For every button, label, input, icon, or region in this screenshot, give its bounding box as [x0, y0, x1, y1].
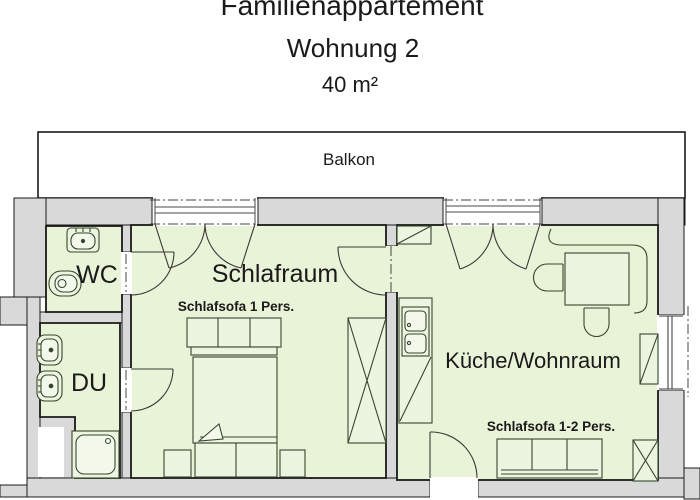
wall-central-1 — [122, 225, 131, 252]
wall-right-lower — [658, 390, 684, 480]
title-area: 40 m² — [322, 72, 378, 97]
kitchen-counter — [399, 298, 432, 423]
sofa-outline — [497, 439, 602, 478]
du-sink-icon — [37, 371, 62, 401]
kitchen-sofa-label: Schlafsofa 1-2 Pers. — [487, 419, 615, 434]
sofa-seat — [187, 318, 281, 347]
wall-left-protrusion — [0, 297, 27, 325]
bedroom-sofa — [187, 318, 281, 355]
title-line2: Wohnung 2 — [287, 33, 420, 63]
wardrobe — [348, 318, 386, 443]
bed-outline — [193, 357, 277, 443]
shaft-niche — [38, 427, 64, 477]
wall-right-upper — [658, 198, 684, 315]
window-opening — [657, 315, 685, 390]
du-sink-icon — [37, 335, 62, 365]
sink-drain — [49, 384, 53, 388]
nightstand — [280, 450, 305, 477]
sink-drain — [49, 348, 53, 352]
title-line1: Familienappartement — [220, 0, 483, 21]
toilet-flush — [58, 280, 66, 288]
wall-bottom-left — [27, 478, 430, 497]
bedroom-sofa-label: Schlafsofa 1 Pers. — [178, 299, 294, 314]
wc-sink-icon — [67, 228, 99, 252]
wall-top-middle — [258, 198, 443, 225]
cupboard-window — [640, 334, 658, 384]
wall-bedroom-kitchen-2 — [386, 292, 397, 480]
kitchen-sink-basin — [405, 311, 426, 331]
balcony-label: Balkon — [323, 150, 375, 169]
kitchen-sink-basin — [405, 334, 426, 353]
nightstand — [164, 450, 191, 477]
bedroom-label: Schlafraum — [212, 260, 338, 288]
wall-bottom-stub — [0, 485, 27, 497]
du-label: DU — [71, 369, 107, 397]
entry-door-opening — [430, 477, 478, 498]
wc-label: WC — [76, 261, 118, 289]
sofa-front — [191, 347, 277, 355]
floorplan: Familienappartement Wohnung 2 40 m² Balk… — [0, 0, 700, 500]
wall-central-2 — [122, 294, 131, 368]
floorplan-drawing: Familienappartement Wohnung 2 40 m² Balk… — [0, 0, 700, 500]
kitchen-cabinet-top — [397, 226, 431, 244]
shower-icon — [72, 431, 119, 478]
kitchen-sofa — [497, 439, 602, 478]
cupboard-x — [633, 440, 658, 481]
wall-central-3 — [122, 412, 131, 478]
kitchen-label: Küche/Wohnraum — [445, 348, 621, 373]
wall-left-upper — [14, 198, 46, 297]
sink-drain — [81, 239, 84, 242]
shower-tray — [76, 435, 115, 474]
dining-table — [565, 253, 629, 305]
wall-wc-du — [40, 312, 131, 323]
wall-right-step — [684, 468, 700, 499]
wall-bedroom-kitchen-1 — [386, 225, 397, 246]
